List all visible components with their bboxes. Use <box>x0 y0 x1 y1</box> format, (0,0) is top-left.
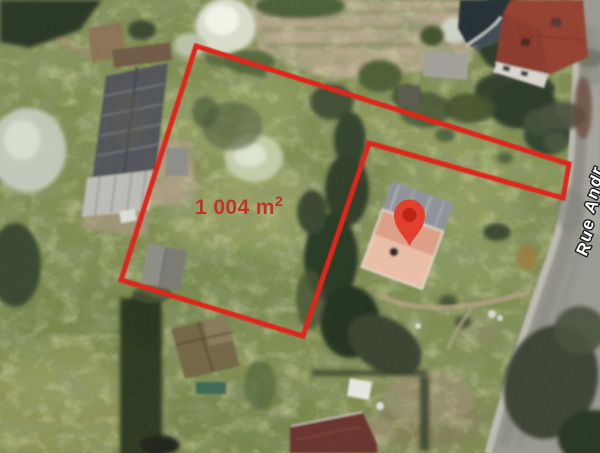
svg-text:1 004 m2: 1 004 m2 <box>195 193 283 219</box>
